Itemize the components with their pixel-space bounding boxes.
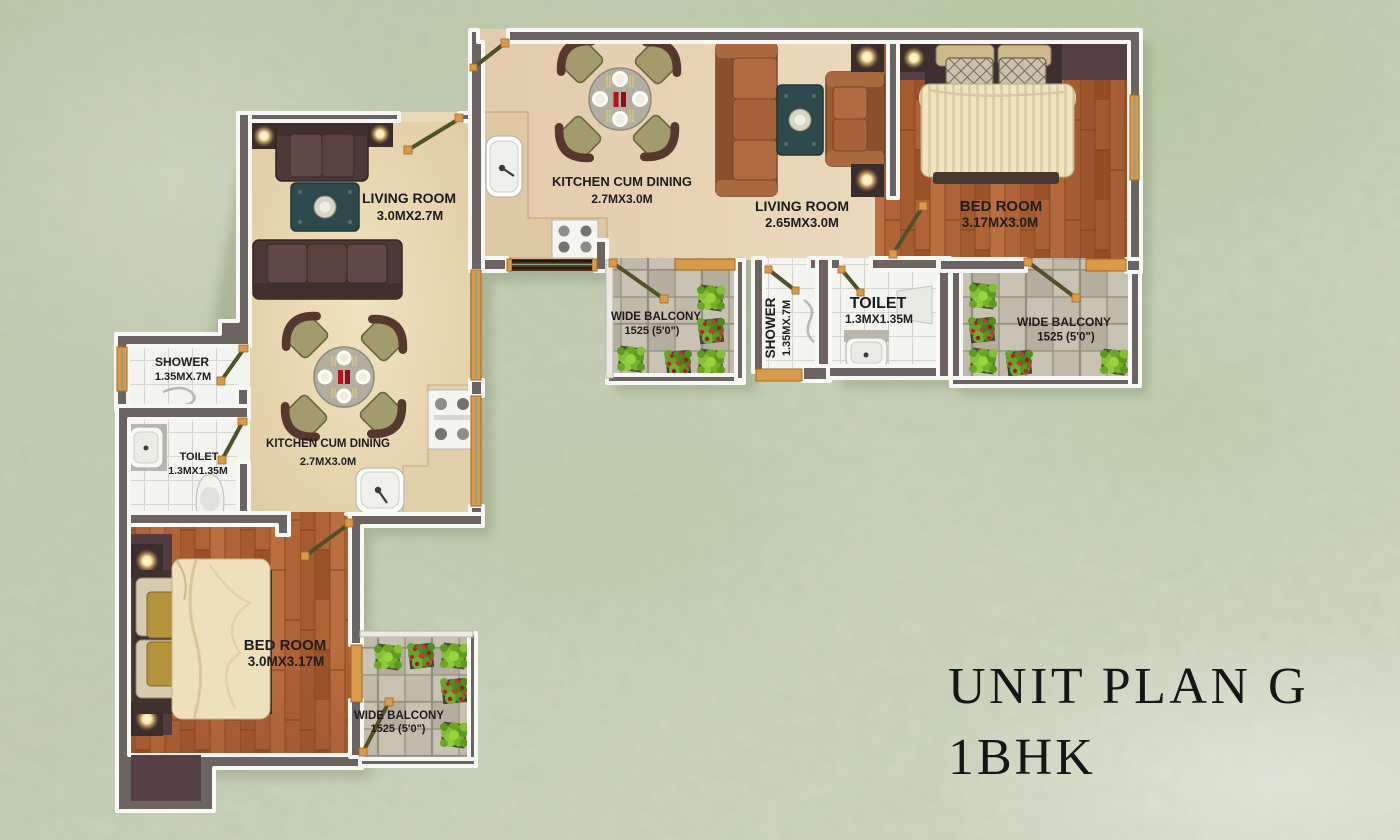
svg-text:WIDE BALCONY: WIDE BALCONY bbox=[1017, 315, 1111, 329]
svg-text:KITCHEN CUM DINING: KITCHEN CUM DINING bbox=[266, 438, 390, 450]
svg-text:1BHK: 1BHK bbox=[948, 729, 1096, 786]
svg-text:1525 (5'0"): 1525 (5'0") bbox=[371, 723, 426, 735]
svg-text:2.65MX3.0M: 2.65MX3.0M bbox=[765, 215, 839, 230]
svg-text:BED ROOM: BED ROOM bbox=[244, 637, 327, 654]
svg-text:UNIT PLAN G: UNIT PLAN G bbox=[948, 658, 1309, 715]
svg-text:2.7MX3.0M: 2.7MX3.0M bbox=[300, 456, 356, 468]
svg-text:2.7MX3.0M: 2.7MX3.0M bbox=[591, 192, 652, 206]
svg-text:TOILET: TOILET bbox=[850, 295, 907, 312]
svg-text:LIVING ROOM: LIVING ROOM bbox=[362, 190, 456, 206]
svg-text:3.17MX3.0M: 3.17MX3.0M bbox=[962, 215, 1039, 230]
svg-text:WIDE BALCONY: WIDE BALCONY bbox=[611, 311, 701, 323]
svg-text:1525 (5'0"): 1525 (5'0") bbox=[1037, 332, 1095, 344]
svg-text:SHOWER: SHOWER bbox=[155, 355, 209, 369]
svg-text:3.0MX3.17M: 3.0MX3.17M bbox=[248, 654, 325, 669]
svg-text:1.3MX1.35M: 1.3MX1.35M bbox=[168, 465, 228, 477]
svg-text:TOILET: TOILET bbox=[180, 451, 219, 463]
svg-text:1.35MX.7M: 1.35MX.7M bbox=[155, 371, 211, 383]
svg-text:SHOWER: SHOWER bbox=[763, 297, 778, 358]
svg-text:1525 (5'0"): 1525 (5'0") bbox=[625, 325, 680, 337]
svg-text:BED ROOM: BED ROOM bbox=[960, 198, 1043, 215]
svg-text:1.35MX.7M: 1.35MX.7M bbox=[781, 300, 793, 356]
svg-text:KITCHEN CUM DINING: KITCHEN CUM DINING bbox=[552, 174, 692, 189]
svg-text:1.3MX1.35M: 1.3MX1.35M bbox=[845, 312, 913, 326]
svg-text:WIDE BALCONY: WIDE BALCONY bbox=[354, 710, 444, 722]
svg-text:3.0MX2.7M: 3.0MX2.7M bbox=[377, 208, 443, 223]
svg-text:LIVING ROOM: LIVING ROOM bbox=[755, 198, 849, 214]
